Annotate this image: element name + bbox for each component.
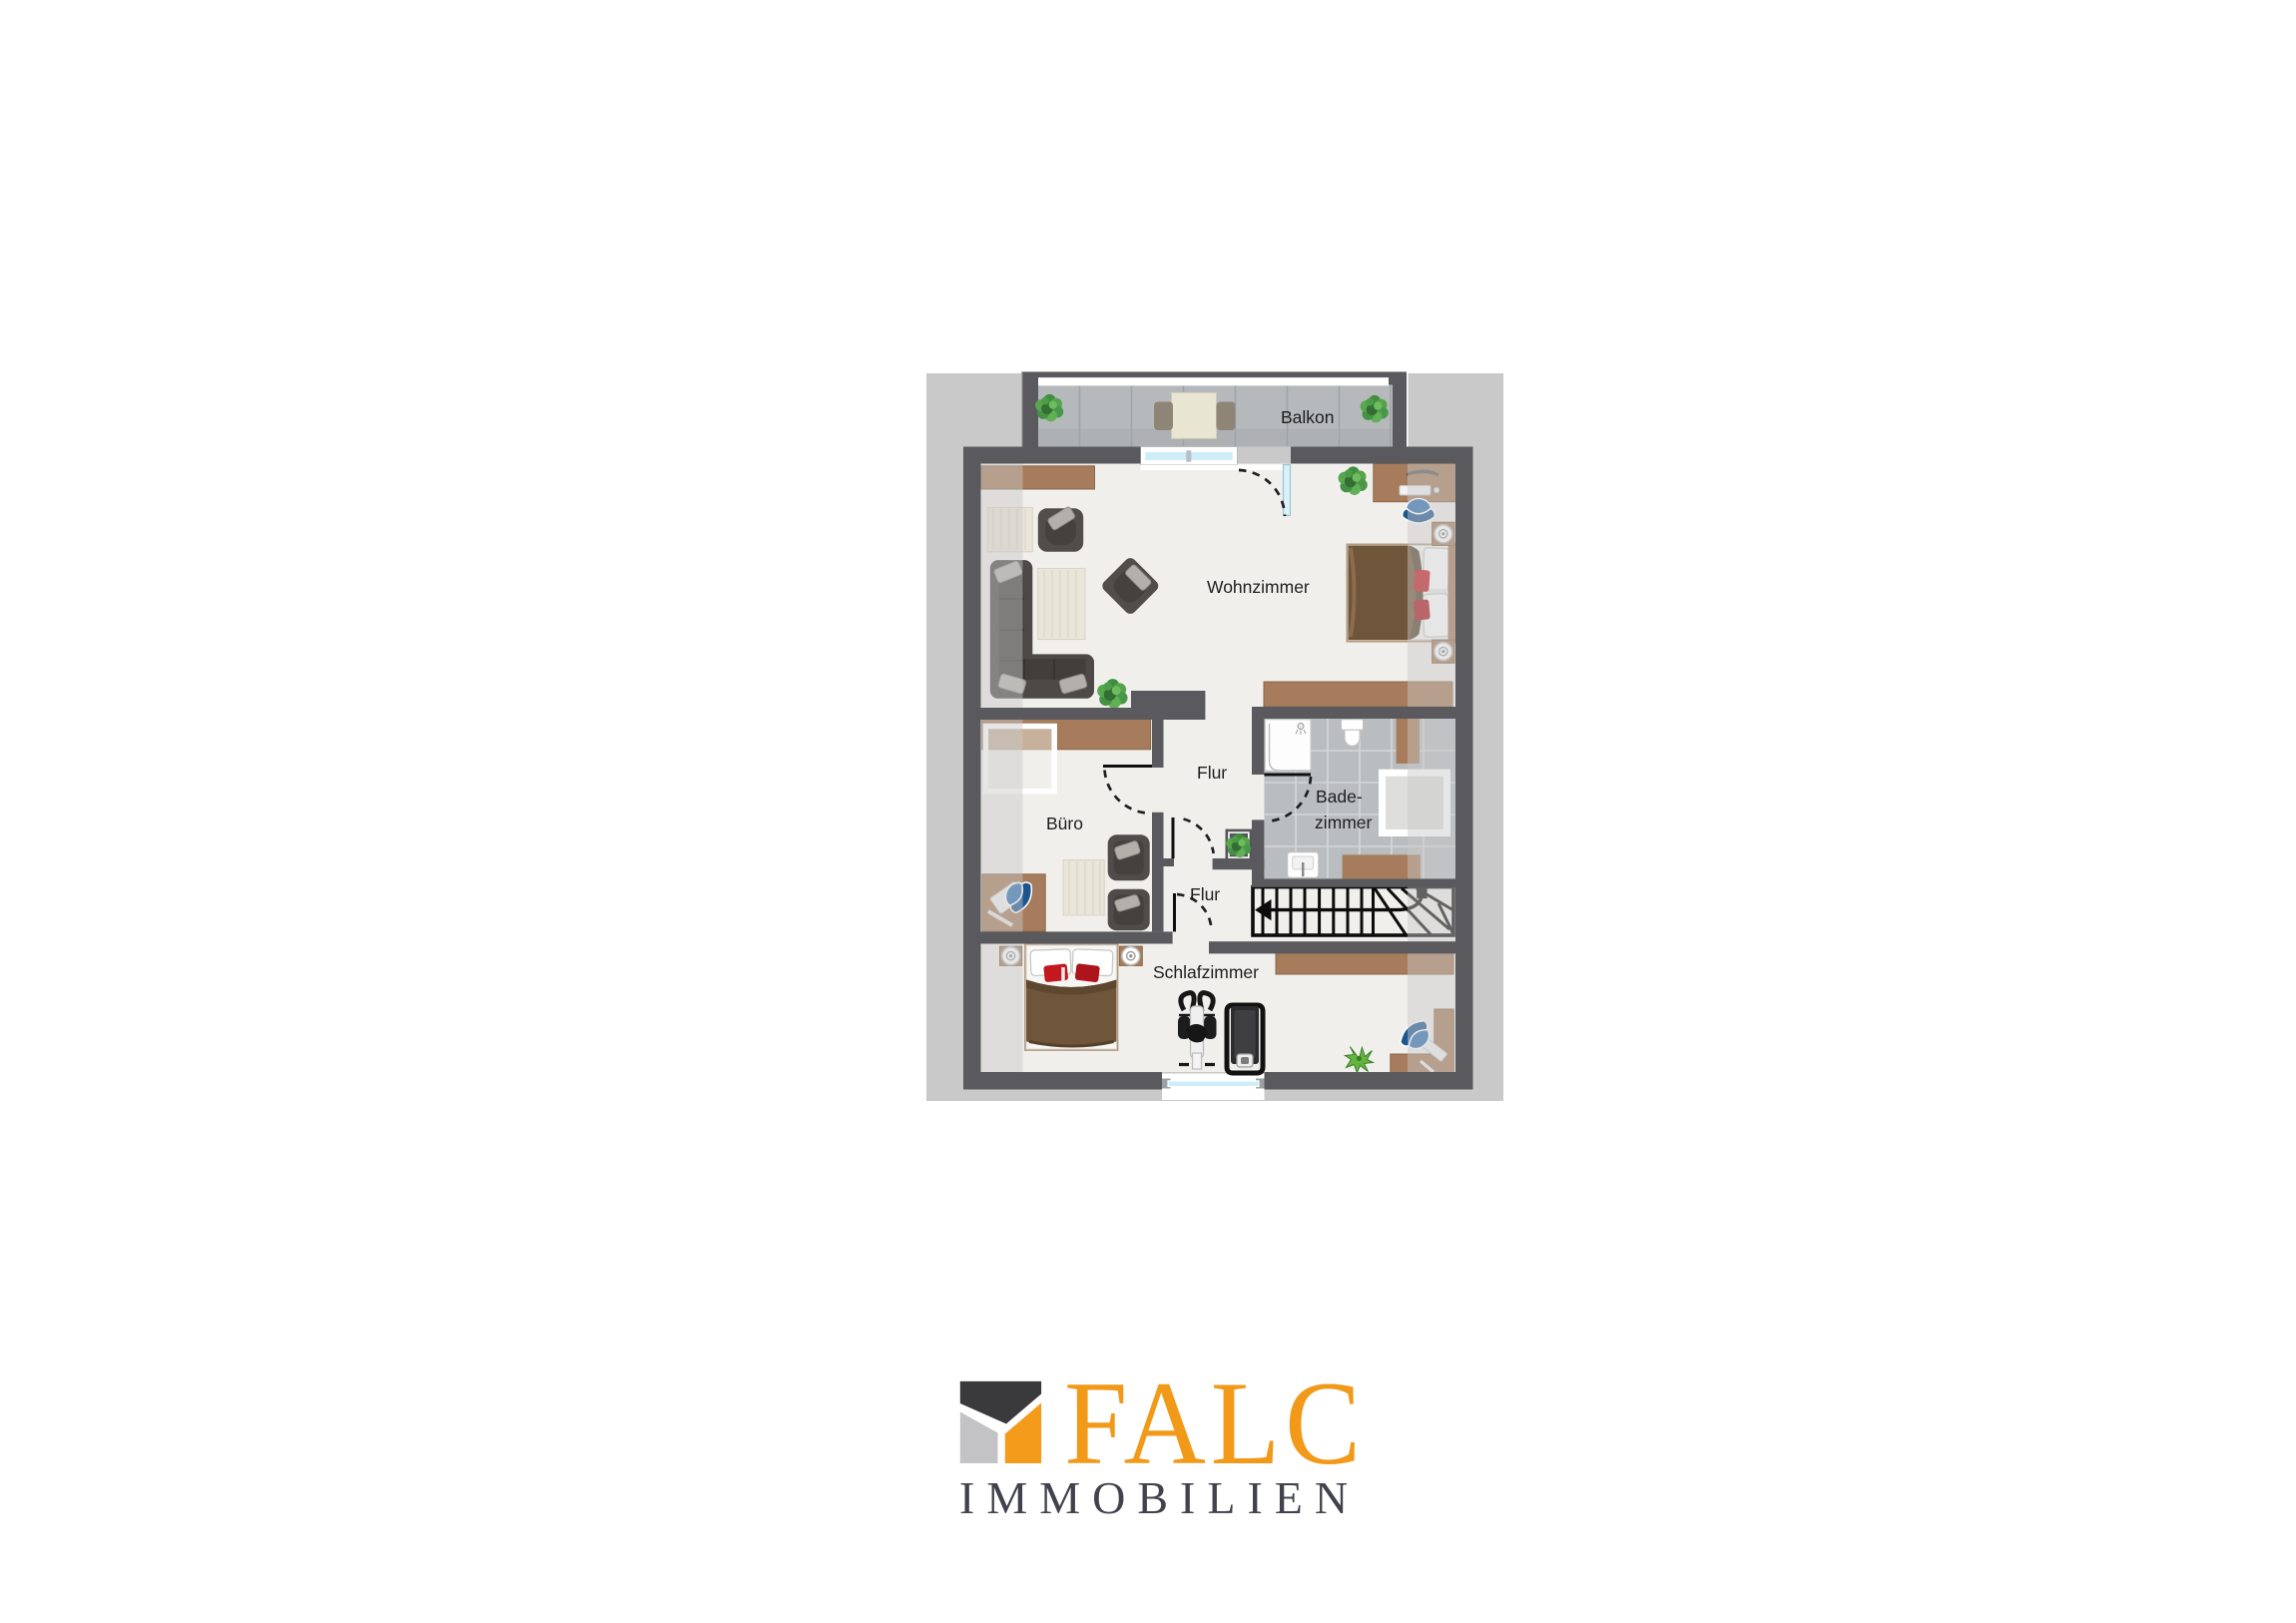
svg-text:Wohnzimmer: Wohnzimmer [1207,577,1310,597]
svg-text:FALC: FALC [1064,1357,1366,1489]
svg-text:zimmer: zimmer [1315,812,1373,832]
svg-text:Balkon: Balkon [1281,407,1335,427]
svg-text:Flur: Flur [1190,884,1220,904]
svg-text:Schlafzimmer: Schlafzimmer [1153,962,1259,982]
svg-text:Bade-: Bade- [1316,787,1363,807]
svg-text:Flur: Flur [1197,763,1227,783]
svg-text:Büro: Büro [1046,813,1083,833]
svg-text:IMMOBILIEN: IMMOBILIEN [959,1472,1360,1523]
